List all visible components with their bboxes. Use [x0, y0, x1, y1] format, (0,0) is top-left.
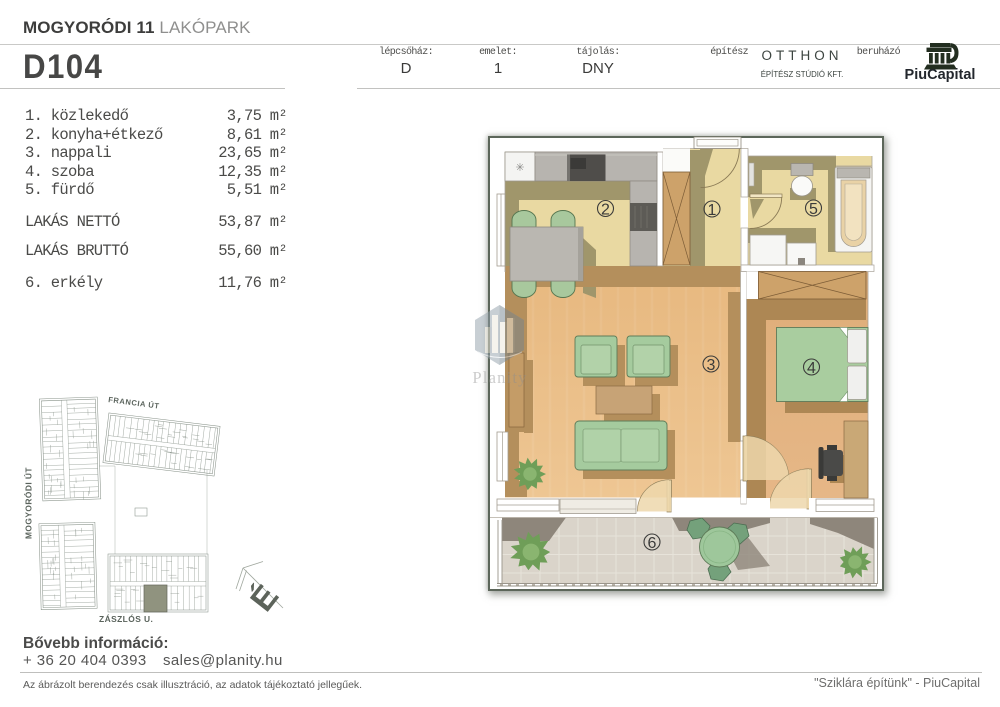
svg-text:FRANCIA ÚT: FRANCIA ÚT	[108, 395, 160, 411]
svg-text:ZÁSZLÓS U.: ZÁSZLÓS U.	[99, 613, 153, 624]
svg-text:6: 6	[648, 535, 657, 552]
svg-text:4: 4	[807, 360, 816, 377]
svg-text:3: 3	[707, 357, 716, 374]
svg-text:É: É	[243, 578, 286, 618]
svg-text:2: 2	[601, 201, 610, 218]
svg-text:Planity: Planity	[472, 368, 527, 387]
svg-text:PiuCapital: PiuCapital	[905, 67, 976, 83]
svg-text:MOGYORÓDI ÚT: MOGYORÓDI ÚT	[23, 467, 34, 539]
svg-text:5: 5	[809, 201, 818, 218]
svg-text:1: 1	[708, 202, 717, 219]
svg-text:✳: ✳	[515, 162, 524, 174]
